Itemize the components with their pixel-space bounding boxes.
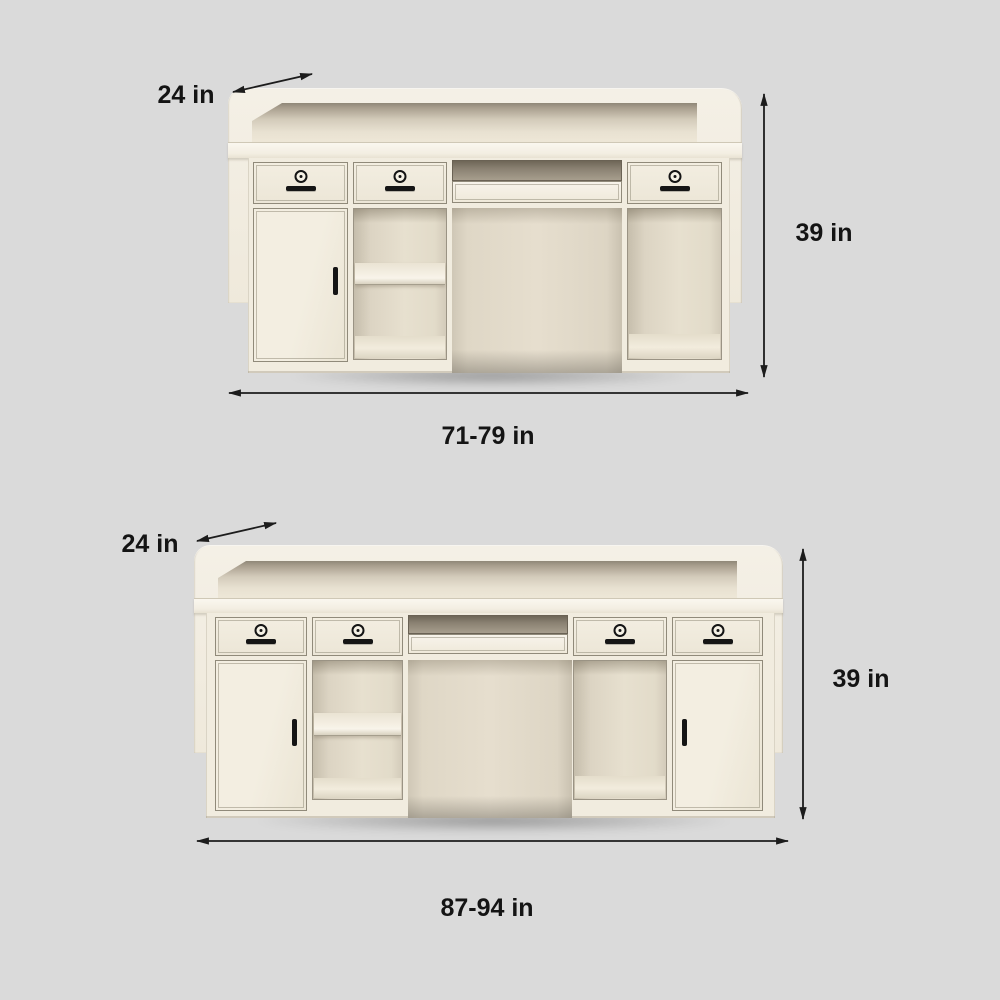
desk2-open-compartment — [573, 660, 667, 800]
shelf — [314, 713, 401, 736]
desk1-drawer-2 — [353, 162, 447, 204]
desk2-knee-space — [408, 660, 572, 818]
drawer-handle — [703, 639, 733, 644]
keyhole-icon — [294, 170, 307, 183]
desk1-open-compartment — [627, 208, 722, 360]
desk2-cabinet-door-right — [672, 660, 763, 811]
desk2-drawer-3 — [573, 617, 667, 656]
door-handle — [333, 267, 338, 295]
desk2-width-label: 87-94 in — [387, 893, 587, 923]
desk1-cabinet-door — [253, 208, 348, 362]
desk2-drawer-2 — [312, 617, 403, 656]
desk2-open-shelves — [312, 660, 403, 800]
desk1-depth-label: 24 in — [106, 80, 266, 110]
desk2-drawer-4 — [672, 617, 763, 656]
drawer-handle — [286, 186, 316, 191]
drawer-handle — [605, 639, 635, 644]
keyhole-icon — [668, 170, 681, 183]
drawer-handle — [343, 639, 373, 644]
desk1-counter-top — [228, 142, 742, 158]
keyhole-icon — [711, 624, 724, 637]
door-handle — [292, 719, 297, 746]
shelf-floor — [314, 778, 401, 798]
door-handle — [682, 719, 687, 746]
desk1-drawer-3 — [627, 162, 722, 204]
desk2-keyboard-slot — [408, 615, 568, 634]
keyhole-icon — [614, 624, 627, 637]
desk2-cabinet-door-left — [215, 660, 307, 811]
shelf — [355, 263, 445, 285]
desk1-drawer-1 — [253, 162, 348, 204]
desk2-counter-top — [194, 598, 783, 613]
shelf-floor — [575, 776, 665, 798]
desk2-height-label: 39 in — [781, 664, 941, 694]
drawer-handle — [385, 186, 415, 191]
drawer-handle — [660, 186, 690, 191]
desk2-keyboard-tray — [408, 634, 568, 654]
keyhole-icon — [351, 624, 364, 637]
shelf-floor — [355, 336, 445, 358]
desk1-keyboard-tray — [452, 181, 622, 203]
keyhole-icon — [394, 170, 407, 183]
keyhole-icon — [255, 624, 268, 637]
desk1-open-shelves — [353, 208, 447, 360]
drawer-handle — [246, 639, 276, 644]
desk1-keyboard-slot — [452, 160, 622, 181]
desk2-drawer-1 — [215, 617, 307, 656]
shelf-floor — [629, 334, 720, 358]
desk1-knee-space — [452, 208, 622, 373]
product-dimension-diagram: 24 in 39 in 71-79 in 24 in 39 in 87-94 i… — [0, 0, 1000, 1000]
desk2-depth-label: 24 in — [70, 529, 230, 559]
desk1-top-shelf-recess — [252, 103, 697, 144]
desk1-width-label: 71-79 in — [388, 421, 588, 451]
desk1-height-label: 39 in — [744, 218, 904, 248]
desk2-top-shelf-recess — [218, 561, 737, 600]
